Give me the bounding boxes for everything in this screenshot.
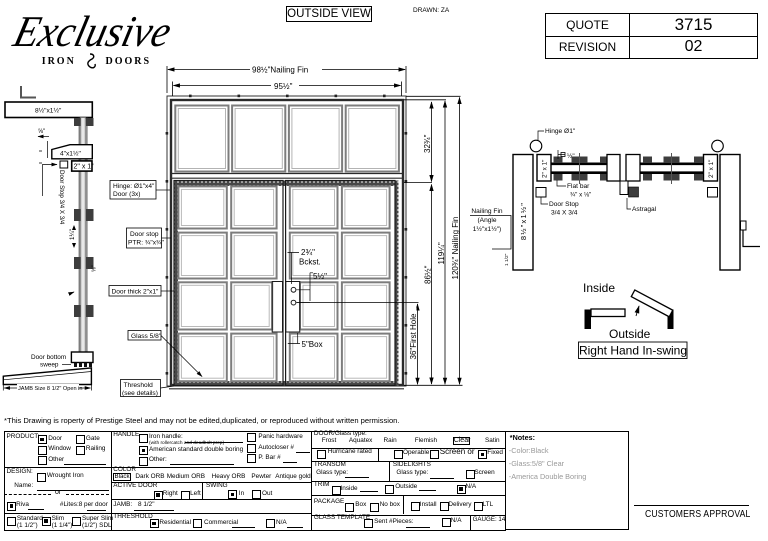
svg-text:98½"Nailing Fin: 98½"Nailing Fin (252, 66, 308, 75)
svg-text:Door stop: Door stop (130, 231, 159, 238)
svg-text:Nailing Fin: Nailing Fin (471, 208, 502, 215)
svg-text:3/4 X 3/4: 3/4 X 3/4 (551, 210, 578, 217)
svg-text:1¼": 1¼" (69, 229, 76, 240)
svg-text:2¾": 2¾" (301, 248, 315, 257)
svg-text:Inside: Inside (583, 281, 615, 295)
svg-text:Door thick 2"x1": Door thick 2"x1" (112, 288, 159, 295)
svg-text:95½": 95½" (274, 82, 293, 91)
svg-text:Hinge: Ø1"x4": Hinge: Ø1"x4" (113, 183, 155, 190)
svg-text:119¼": 119¼" (437, 242, 446, 264)
svg-text:⅝": ⅝" (38, 129, 45, 135)
svg-text:5½": 5½" (313, 272, 327, 281)
svg-text:sweep: sweep (40, 362, 59, 369)
svg-text:⅝": ⅝" (92, 265, 98, 272)
svg-text:Right Hand In-swing: Right Hand In-swing (579, 344, 687, 358)
svg-text:Door Stop: Door Stop (549, 201, 579, 208)
svg-text:Bckst.: Bckst. (299, 258, 321, 267)
svg-text:Glass 5/8": Glass 5/8" (131, 333, 162, 340)
svg-text:Door Stop 3/4 X 3/4: Door Stop 3/4 X 3/4 (58, 170, 65, 225)
svg-text:½": ½" (567, 152, 575, 160)
svg-text:32¾": 32¾" (423, 134, 432, 153)
svg-text:120¾" Nailing Fin: 120¾" Nailing Fin (451, 217, 460, 280)
svg-text:1½"x1½"): 1½"x1½") (473, 225, 502, 233)
svg-text:2" x 1": 2" x 1" (708, 160, 715, 178)
svg-text:5"Box: 5"Box (302, 340, 323, 349)
svg-text:8½"x1½": 8½"x1½" (35, 107, 62, 115)
svg-text:Door (3x): Door (3x) (113, 191, 140, 198)
svg-text:2" x 1": 2" x 1" (74, 164, 95, 171)
svg-text:Hinge Ø1": Hinge Ø1" (545, 128, 576, 135)
svg-text:¾" x ⅛": ¾" x ⅛" (570, 192, 591, 199)
svg-text:Flat bar: Flat bar (567, 183, 590, 190)
svg-text:36"First Hole: 36"First Hole (409, 313, 418, 360)
svg-text:1 1/2": 1 1/2" (504, 253, 510, 266)
svg-text:(see details): (see details) (122, 390, 158, 397)
svg-text:PTR: ¾"x¾": PTR: ¾"x¾" (128, 240, 164, 247)
svg-text:2" x 1": 2" x 1" (542, 160, 549, 178)
svg-text:Threshold: Threshold (124, 382, 154, 389)
svg-text:(Angle: (Angle (477, 217, 496, 224)
svg-text:Door bottom: Door bottom (31, 354, 66, 361)
svg-text:Astragal: Astragal (632, 206, 657, 213)
svg-text:86½": 86½" (424, 265, 433, 284)
svg-text:4"x1½": 4"x1½" (60, 150, 81, 158)
svg-text:Outside: Outside (609, 327, 651, 341)
svg-text:JAMB Size 8 1/2" Open in: JAMB Size 8 1/2" Open in (18, 386, 82, 392)
svg-text:8½"x1½": 8½"x1½" (519, 202, 528, 240)
